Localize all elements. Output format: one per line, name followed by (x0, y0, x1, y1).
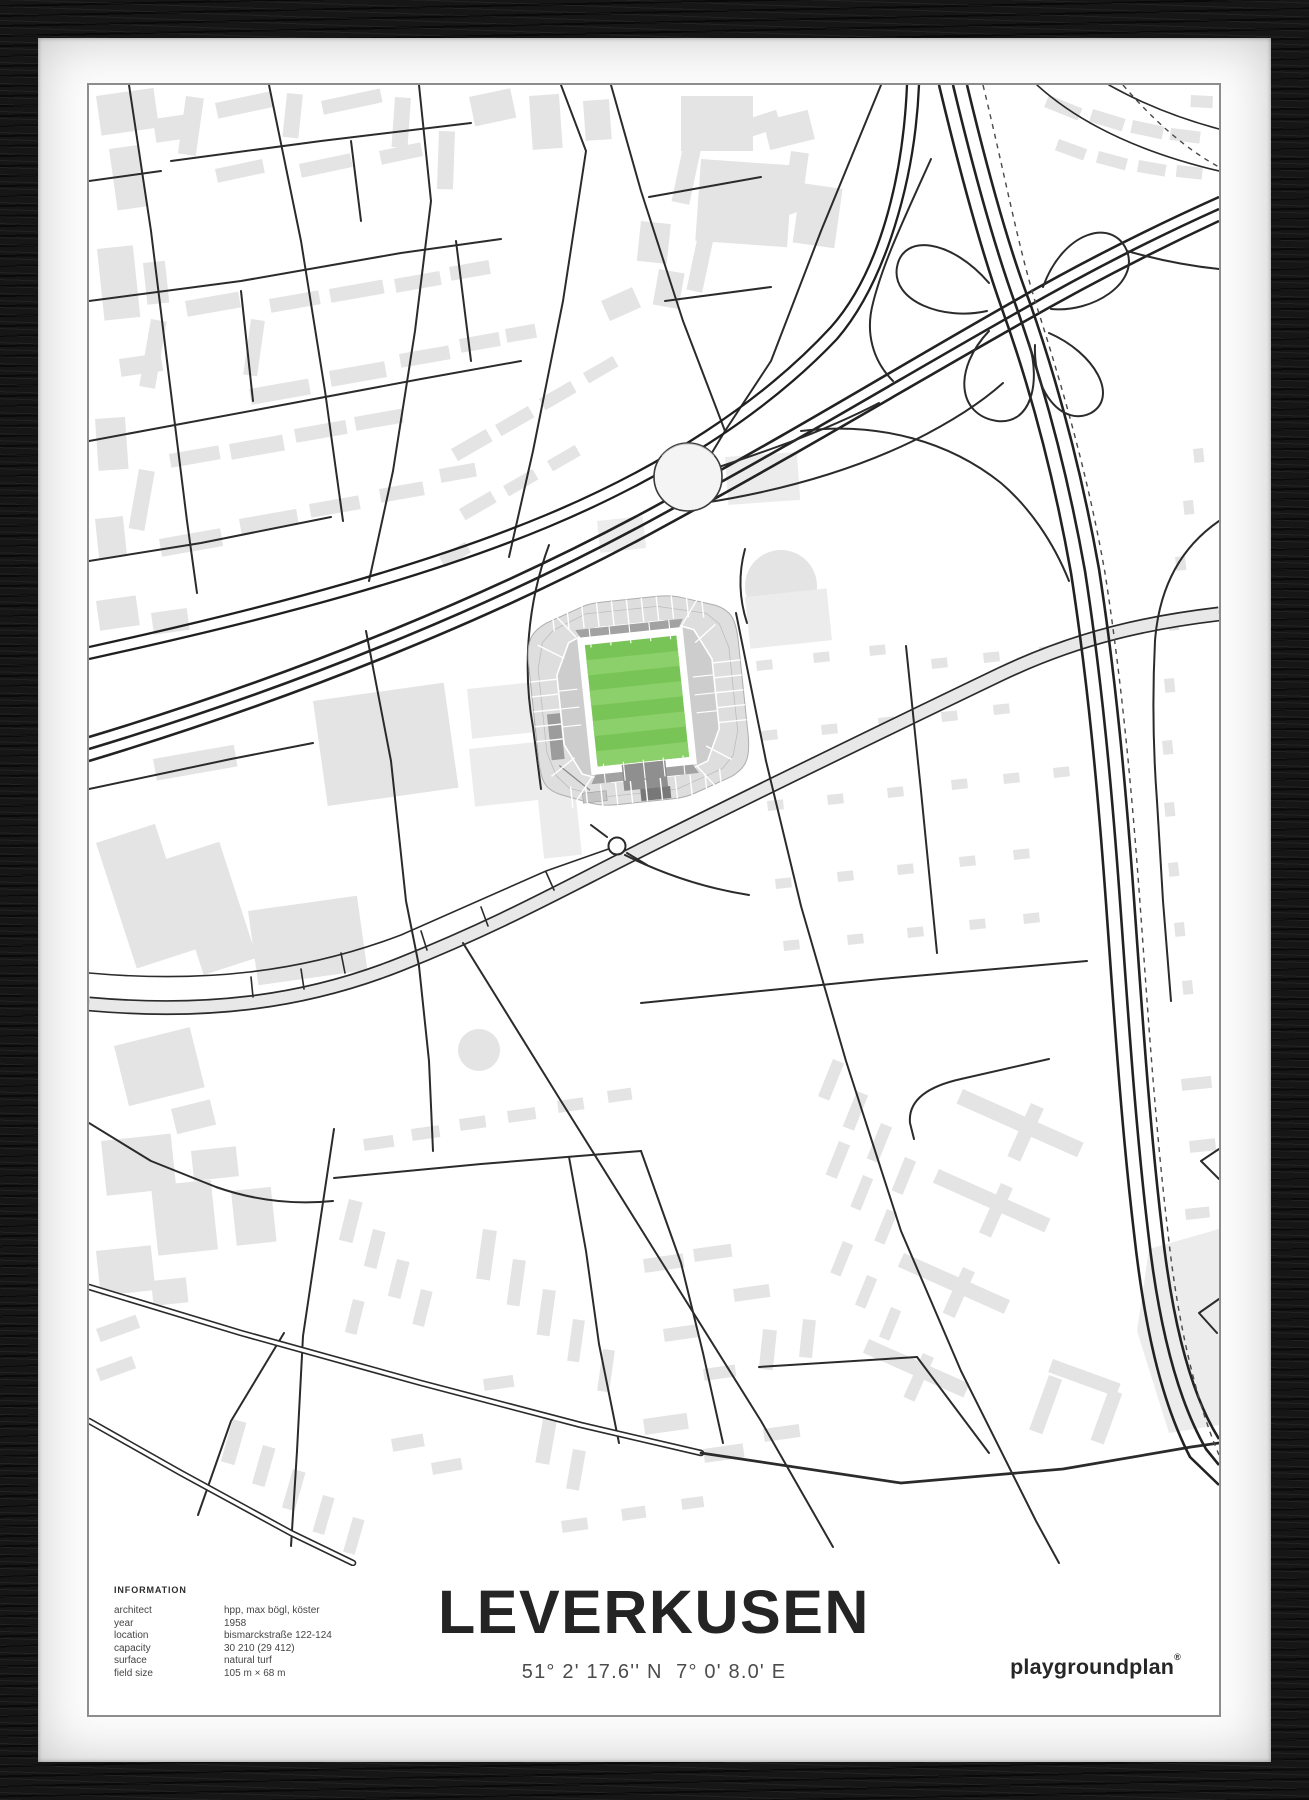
stadium (523, 588, 754, 812)
poster-print-area: INFORMATION architect hpp, max bögl, kös… (87, 83, 1221, 1717)
city-map (89, 85, 1219, 1566)
poster-title: LEVERKUSEN (89, 1577, 1219, 1647)
stadium-pitch (585, 636, 689, 767)
registered-mark: ® (1174, 1652, 1181, 1662)
poster-matte: INFORMATION architect hpp, max bögl, kös… (38, 38, 1271, 1762)
framed-poster: INFORMATION architect hpp, max bögl, kös… (0, 0, 1309, 1800)
brand-logo: playgroundplan® (1010, 1652, 1181, 1680)
map-roundabout (609, 838, 626, 855)
map-residential-east (756, 644, 1070, 951)
map-circular-building (654, 443, 722, 511)
